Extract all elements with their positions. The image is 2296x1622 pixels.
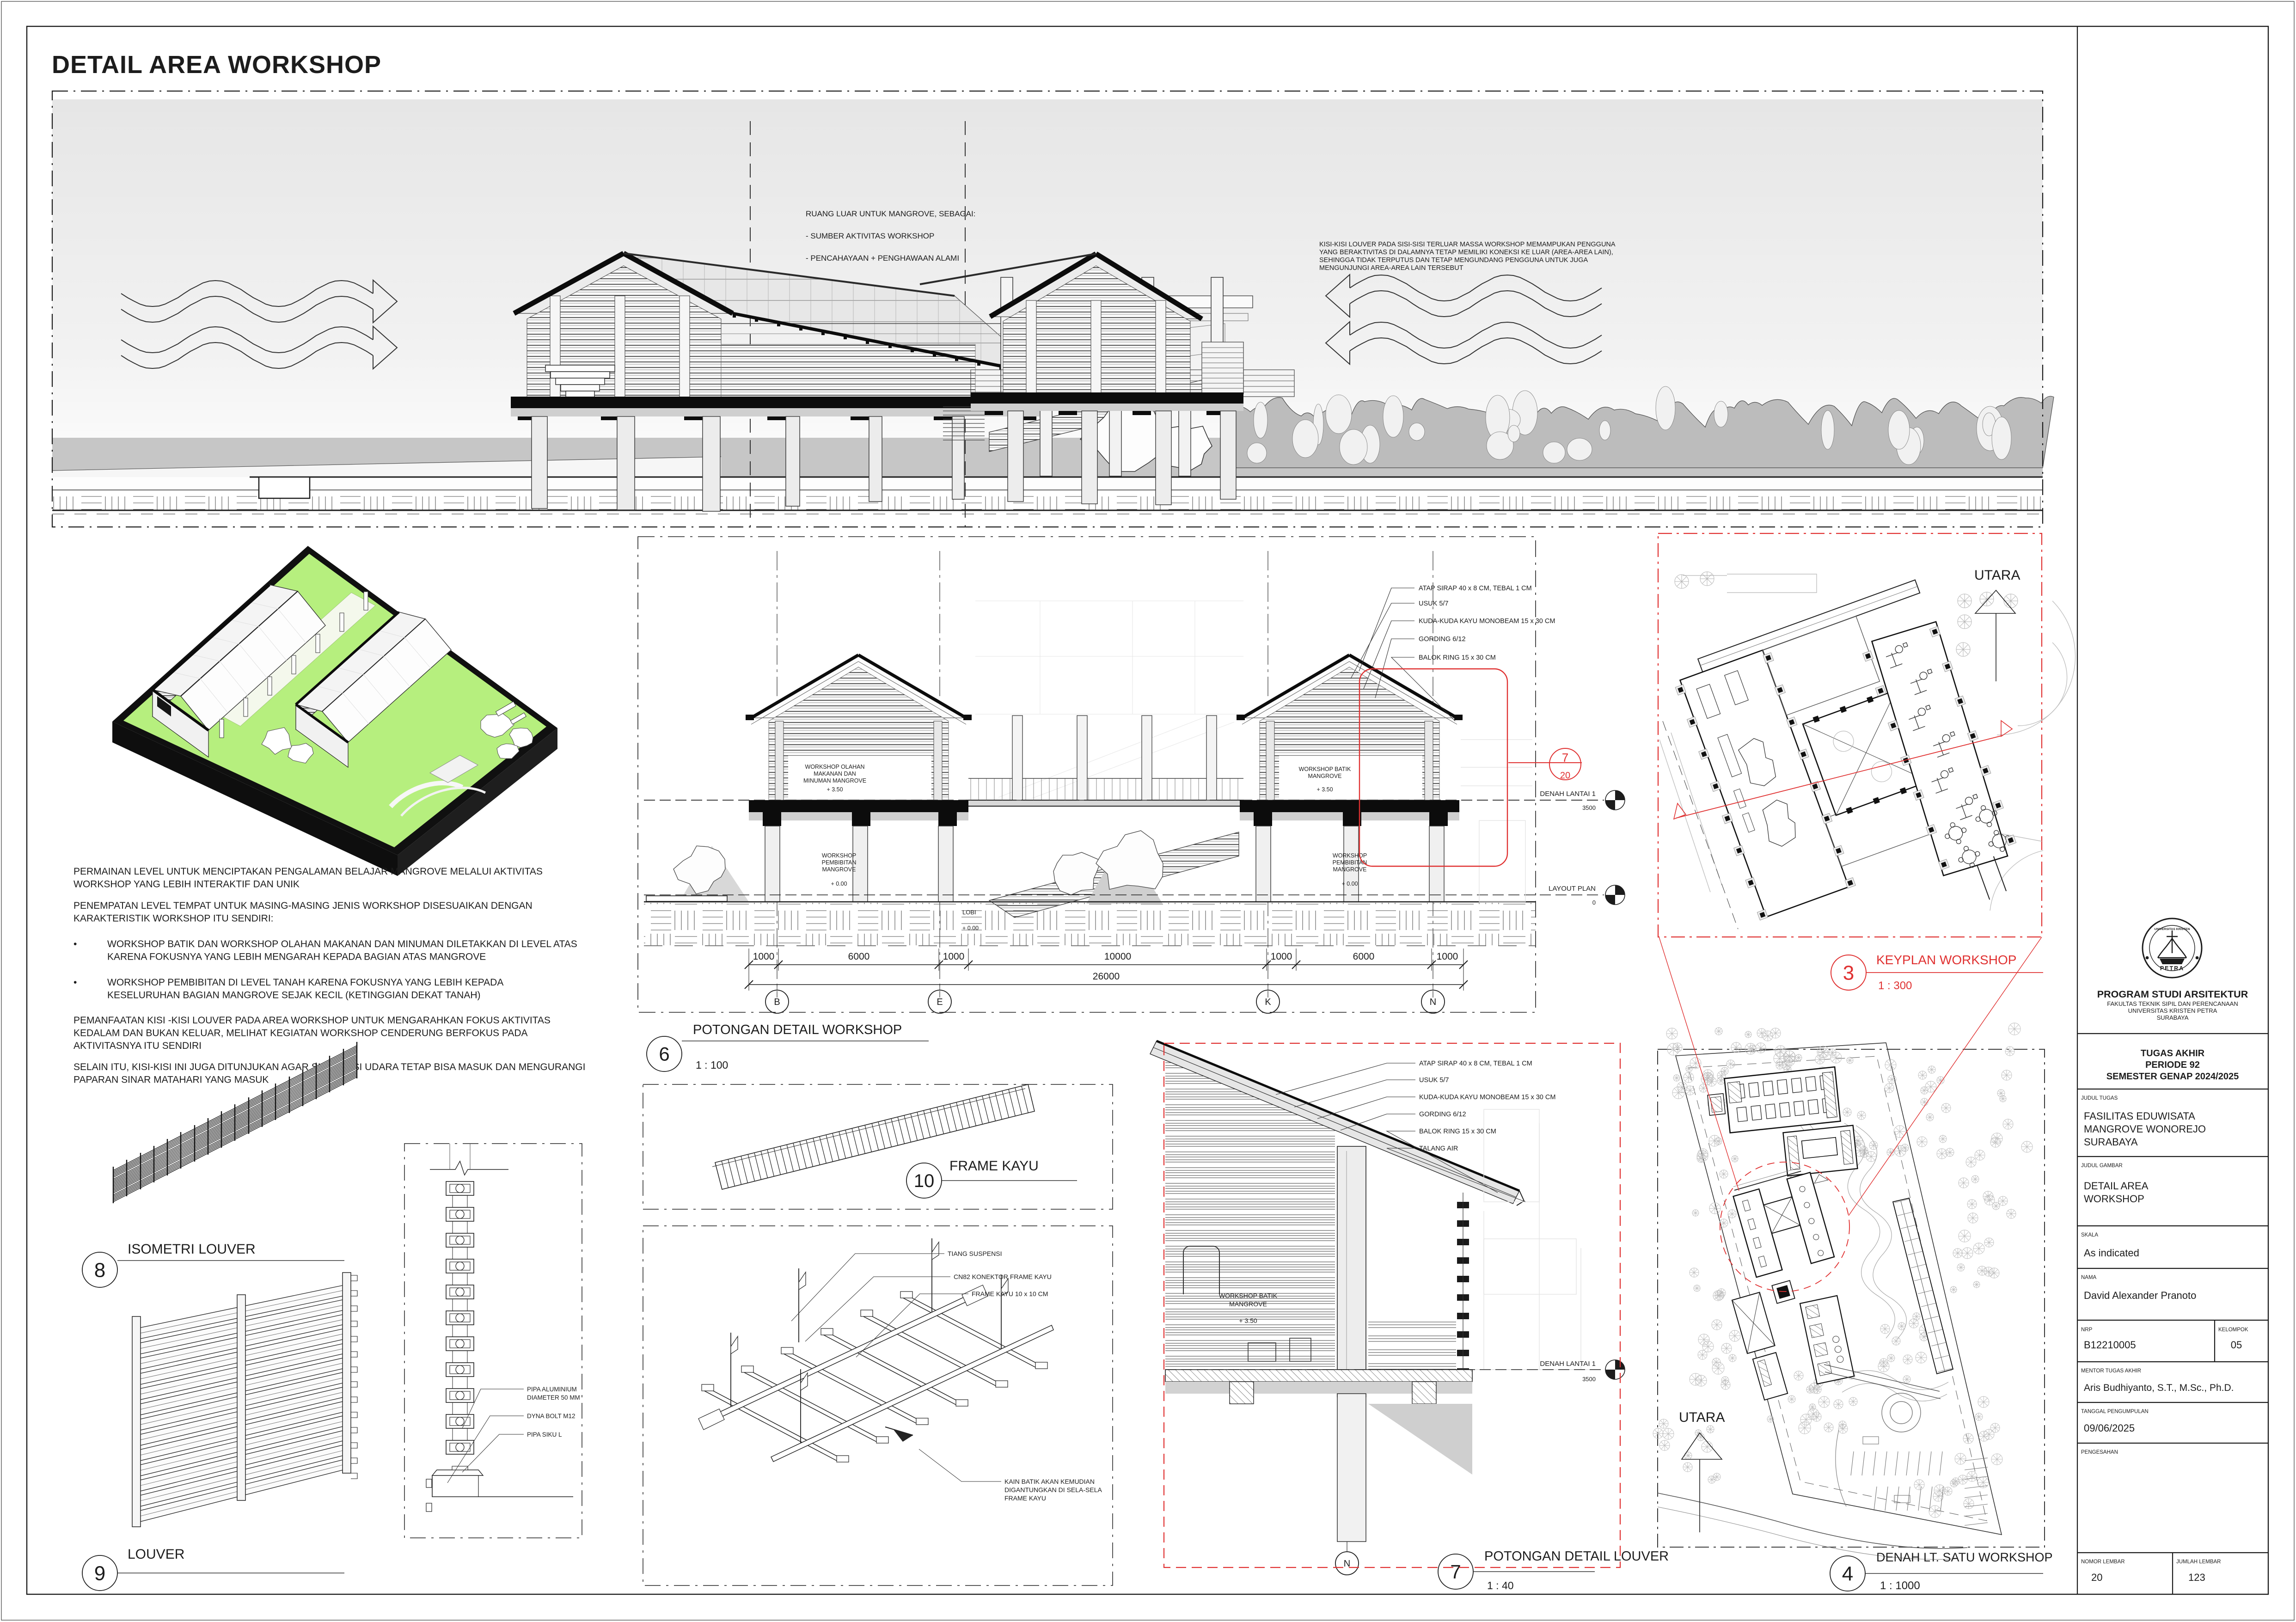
svg-text:KELOMPOK: KELOMPOK (2218, 1327, 2248, 1333)
svg-text:NOMOR LEMBAR: NOMOR LEMBAR (2081, 1559, 2125, 1565)
svg-text:Aris Budhiyanto, S.T., M.Sc.,: Aris Budhiyanto, S.T., M.Sc., Ph.D. (2084, 1383, 2234, 1393)
svg-text:+ 0.00: + 0.00 (831, 881, 847, 887)
svg-text:B12210005: B12210005 (2084, 1339, 2136, 1351)
svg-text:6000: 6000 (848, 951, 870, 962)
svg-text:KEDALAM DAN BUKAN KELUAR, MELI: KEDALAM DAN BUKAN KELUAR, MELIHAT KEGIAT… (73, 1028, 528, 1039)
svg-text:+ 3.50: + 3.50 (827, 786, 843, 793)
svg-text:WORKSHOP PEMBIBITAN DI LEVEL T: WORKSHOP PEMBIBITAN DI LEVEL TANAH KAREN… (107, 977, 503, 988)
svg-text:DENAH LANTAI 1: DENAH LANTAI 1 (1540, 790, 1596, 798)
svg-text:JUMLAH LEMBAR: JUMLAH LEMBAR (2176, 1559, 2221, 1565)
svg-text:9: 9 (94, 1562, 105, 1585)
svg-text:26000: 26000 (1093, 971, 1120, 982)
svg-text:LOBI: LOBI (962, 909, 976, 916)
svg-text:ATAP SIRAP 40 x 8 CM, TEBAL 1: ATAP SIRAP 40 x 8 CM, TEBAL 1 CM (1419, 585, 1532, 592)
svg-text:GORDING 6/12: GORDING 6/12 (1419, 636, 1466, 643)
svg-text:- SUMBER AKTIVITAS WORKSHOP: - SUMBER AKTIVITAS WORKSHOP (806, 232, 934, 240)
svg-text:UNIVERSITAS KRISTEN PETRA: UNIVERSITAS KRISTEN PETRA (2128, 1007, 2217, 1014)
svg-text:LAYOUT PLAN: LAYOUT PLAN (1549, 885, 1596, 893)
svg-text:6: 6 (659, 1043, 669, 1065)
svg-text:GORDING 6/12: GORDING 6/12 (1419, 1111, 1466, 1118)
svg-text:POTONGAN DETAIL LOUVER: POTONGAN DETAIL LOUVER (1484, 1549, 1669, 1564)
svg-text:NAMA: NAMA (2081, 1275, 2097, 1280)
svg-text:LOUVER: LOUVER (128, 1547, 184, 1562)
svg-text:TUGAS AKHIR: TUGAS AKHIR (2141, 1048, 2205, 1059)
svg-text:MANGROVE: MANGROVE (1333, 866, 1367, 873)
svg-text:PENGESAHAN: PENGESAHAN (2081, 1450, 2118, 1455)
svg-text:SURABAYA: SURABAYA (2084, 1136, 2138, 1148)
svg-text:MANGROVE: MANGROVE (822, 866, 856, 873)
svg-text:PETRA: PETRA (2160, 965, 2184, 972)
svg-text:DIGANTUNGKAN DI SELA-SELA: DIGANTUNGKAN DI SELA-SELA (1004, 1486, 1102, 1493)
svg-text:05: 05 (2231, 1339, 2242, 1351)
svg-text:+ 0.00: + 0.00 (1341, 881, 1358, 887)
svg-text:CN82 KONEKTOR FRAME KAYU: CN82 KONEKTOR FRAME KAYU (954, 1273, 1052, 1280)
svg-text:4: 4 (1842, 1562, 1853, 1585)
svg-text:DETAIL AREA WORKSHOP: DETAIL AREA WORKSHOP (52, 51, 381, 79)
svg-text:David Alexander Pranoto: David Alexander Pranoto (2084, 1290, 2196, 1301)
svg-text:FRAME KAYU: FRAME KAYU (1004, 1494, 1046, 1502)
svg-text:UTARA: UTARA (1679, 1410, 1725, 1425)
svg-text:DETAIL AREA: DETAIL AREA (2084, 1180, 2149, 1192)
svg-text:123: 123 (2188, 1572, 2205, 1583)
svg-text:SEMESTER GENAP 2024/2025: SEMESTER GENAP 2024/2025 (2106, 1071, 2239, 1082)
svg-text:PENEMPATAN LEVEL TEMPAT UNTUK: PENEMPATAN LEVEL TEMPAT UNTUK MASING-MAS… (73, 900, 533, 911)
svg-text:E: E (937, 997, 943, 1007)
svg-text:AKTIVITASNYA ITU SENDIRI: AKTIVITASNYA ITU SENDIRI (73, 1041, 202, 1051)
svg-text:WORKSHOP: WORKSHOP (822, 852, 856, 859)
svg-text:20: 20 (1560, 771, 1570, 781)
svg-text:+ 0.00: + 0.00 (962, 925, 979, 931)
svg-text:KESELURUHAN BAGIAN MANGROVE SE: KESELURUHAN BAGIAN MANGROVE SEJAK KECIL … (107, 990, 481, 1001)
svg-text:KARENA FOKUSNYA YANG LEBIH MEN: KARENA FOKUSNYA YANG LEBIH MENGARAH KEPA… (107, 952, 486, 962)
svg-text:KEYPLAN WORKSHOP: KEYPLAN WORKSHOP (1876, 953, 2016, 967)
svg-text:ATAP SIRAP 40 x 8 CM, TEBAL 1: ATAP SIRAP 40 x 8 CM, TEBAL 1 CM (1419, 1060, 1532, 1067)
svg-text:TALANG AIR: TALANG AIR (1419, 1145, 1458, 1152)
svg-text:MENTOR TUGAS AKHIR: MENTOR TUGAS AKHIR (2081, 1368, 2141, 1374)
svg-text:JUDUL TUGAS: JUDUL TUGAS (2081, 1096, 2118, 1101)
svg-text:1000: 1000 (753, 951, 775, 962)
svg-text:USUK 5/7: USUK 5/7 (1419, 600, 1448, 607)
svg-text:WORKSHOP OLAHAN: WORKSHOP OLAHAN (805, 764, 865, 770)
svg-text:PROGRAM STUDI ARSITEKTUR: PROGRAM STUDI ARSITEKTUR (2097, 989, 2248, 1000)
svg-text:MAKANAN DAN: MAKANAN DAN (814, 771, 856, 777)
svg-text:WORKSHOP BATIK: WORKSHOP BATIK (1299, 766, 1351, 772)
svg-text:UTARA: UTARA (1974, 568, 2020, 583)
svg-text:JUDUL GAMBAR: JUDUL GAMBAR (2081, 1163, 2123, 1169)
svg-text:B: B (774, 997, 780, 1007)
svg-text:DIAMETER 50 MM: DIAMETER 50 MM (527, 1394, 580, 1401)
svg-text:FRAME KAYU 10 x 10 CM: FRAME KAYU 10 x 10 CM (972, 1290, 1048, 1298)
svg-text:1 : 100: 1 : 100 (696, 1059, 728, 1071)
svg-text:8: 8 (94, 1259, 105, 1281)
svg-text:MENGUNJUNGI AREA-AREA LAIN TER: MENGUNJUNGI AREA-AREA LAIN TERSEBUT (1319, 264, 1463, 272)
svg-text:DENAH LANTAI 1: DENAH LANTAI 1 (1540, 1360, 1596, 1368)
svg-text:KARAKTERISTIK WORKSHOP ITU SEN: KARAKTERISTIK WORKSHOP ITU SENDIRI: (73, 913, 274, 924)
svg-text:SEHINGGA TIDAK TERPUTUS DAN TE: SEHINGGA TIDAK TERPUTUS DAN TETAP MENGUN… (1319, 257, 1588, 264)
svg-text:WORKSHOP: WORKSHOP (2084, 1193, 2144, 1205)
svg-text:KUDA-KUDA KAYU MONOBEAM 15 x 3: KUDA-KUDA KAYU MONOBEAM 15 x 30 CM (1419, 618, 1555, 625)
svg-text:+ 3.50: + 3.50 (1239, 1317, 1257, 1324)
svg-text:MANGROVE: MANGROVE (1229, 1300, 1267, 1308)
svg-text:20: 20 (2091, 1572, 2102, 1583)
svg-text:WORKSHOP YANG LEBIH INTERAKTIF: WORKSHOP YANG LEBIH INTERAKTIF DAN UNIK (73, 879, 300, 890)
svg-text:TIANG SUSPENSI: TIANG SUSPENSI (948, 1250, 1002, 1257)
svg-text:SURABAYA: SURABAYA (2157, 1014, 2189, 1021)
svg-text:PEMBIBITAN: PEMBIBITAN (822, 859, 857, 866)
svg-text:MANGROVE: MANGROVE (1308, 773, 1342, 779)
svg-text:•: • (73, 939, 77, 949)
svg-text:PAPARAN SINAR MATAHARI YANG MA: PAPARAN SINAR MATAHARI YANG MASUK (73, 1075, 269, 1085)
svg-text:•: • (73, 977, 77, 988)
svg-text:KAIN BATIK AKAN KEMUDIAN: KAIN BATIK AKAN KEMUDIAN (1004, 1478, 1095, 1485)
svg-text:As indicated: As indicated (2084, 1247, 2139, 1259)
svg-text:7: 7 (1450, 1561, 1461, 1583)
svg-text:BALOK RING 15 x 30 CM: BALOK RING 15 x 30 CM (1419, 654, 1496, 661)
svg-text:1000: 1000 (943, 951, 965, 962)
svg-text:WORKSHOP: WORKSHOP (1333, 852, 1367, 859)
svg-text:USUK 5/7: USUK 5/7 (1419, 1077, 1449, 1084)
svg-text:KUDA-KUDA KAYU MONOBEAM 15 x 3: KUDA-KUDA KAYU MONOBEAM 15 x 30 CM (1419, 1094, 1555, 1101)
svg-text:MINUMAN MANGROVE: MINUMAN MANGROVE (803, 777, 866, 784)
svg-text:6000: 6000 (1353, 951, 1375, 962)
svg-text:PIPA ALUMINIUM: PIPA ALUMINIUM (527, 1386, 577, 1393)
svg-text:PERMAINAN LEVEL UNTUK MENCIPTA: PERMAINAN LEVEL UNTUK MENCIPTAKAN PENGAL… (73, 866, 543, 877)
svg-text:ISOMETRI LOUVER: ISOMETRI LOUVER (128, 1242, 256, 1257)
svg-text:3: 3 (1843, 961, 1854, 984)
svg-text:NRP: NRP (2081, 1327, 2093, 1333)
svg-text:3500: 3500 (1582, 804, 1596, 811)
svg-text:N: N (1430, 997, 1436, 1007)
svg-text:DENAH LT. SATU WORKSHOP: DENAH LT. SATU WORKSHOP (1876, 1550, 2053, 1564)
svg-text:10000: 10000 (1104, 951, 1131, 962)
svg-text:PEMANFAATAN KISI -KISI LOUVER: PEMANFAATAN KISI -KISI LOUVER PADA AREA … (73, 1015, 551, 1026)
svg-text:PIPA SIKU L: PIPA SIKU L (527, 1431, 562, 1438)
svg-text:09/06/2025: 09/06/2025 (2084, 1422, 2135, 1434)
svg-text:RUANG LUAR UNTUK MANGROVE, SEB: RUANG LUAR UNTUK MANGROVE, SEBAGAI: (806, 209, 975, 218)
svg-text:1 : 40: 1 : 40 (1487, 1579, 1514, 1591)
svg-text:WORKSHOP BATIK DAN WORKSHOP OL: WORKSHOP BATIK DAN WORKSHOP OLAHAN MAKAN… (107, 939, 577, 949)
svg-text:YANG BERAKTIVITAS DI DALAMNYA: YANG BERAKTIVITAS DI DALAMNYA TETAP MEMI… (1319, 249, 1613, 256)
svg-text:MANGROVE WONOREJO: MANGROVE WONOREJO (2084, 1123, 2206, 1135)
svg-text:DYNA BOLT M12: DYNA BOLT M12 (527, 1413, 576, 1420)
svg-text:TANGGAL PENGUMPULAN: TANGGAL PENGUMPULAN (2081, 1409, 2149, 1414)
svg-text:BALOK RING 15 x 30 CM: BALOK RING 15 x 30 CM (1419, 1128, 1496, 1135)
svg-text:1000: 1000 (1271, 951, 1292, 962)
svg-text:WORKSHOP BATIK: WORKSHOP BATIK (1219, 1292, 1278, 1299)
svg-text:3500: 3500 (1582, 1376, 1596, 1383)
svg-text:PERIODE 92: PERIODE 92 (2145, 1060, 2200, 1070)
svg-text:7: 7 (1562, 751, 1568, 765)
svg-text:1 : 300: 1 : 300 (1878, 979, 1912, 992)
svg-text:KISI-KISI LOUVER PADA SISI-SIS: KISI-KISI LOUVER PADA SISI-SISI TERLUAR … (1319, 241, 1616, 248)
svg-text:UNIVERSITAS KRISTEN: UNIVERSITAS KRISTEN (2155, 928, 2190, 931)
svg-text:0: 0 (1592, 899, 1596, 906)
svg-text:+ 3.50: + 3.50 (1316, 786, 1333, 793)
svg-text:SKALA: SKALA (2081, 1232, 2098, 1238)
svg-text:10: 10 (914, 1171, 935, 1191)
svg-text:FAKULTAS TEKNIK SIPIL DAN PERE: FAKULTAS TEKNIK SIPIL DAN PERENCANAAN (2107, 1000, 2238, 1007)
svg-text:FRAME KAYU: FRAME KAYU (949, 1158, 1039, 1174)
svg-text:K: K (1265, 997, 1271, 1007)
svg-text:1 : 1000: 1 : 1000 (1880, 1579, 1920, 1592)
svg-text:FASILITAS EDUWISATA: FASILITAS EDUWISATA (2084, 1110, 2195, 1122)
svg-text:POTONGAN DETAIL WORKSHOP: POTONGAN DETAIL WORKSHOP (693, 1022, 902, 1037)
svg-text:- PENCAHAYAAN + PENGHAWAAN ALA: - PENCAHAYAAN + PENGHAWAAN ALAMI (806, 254, 959, 263)
svg-text:1000: 1000 (1437, 951, 1458, 962)
